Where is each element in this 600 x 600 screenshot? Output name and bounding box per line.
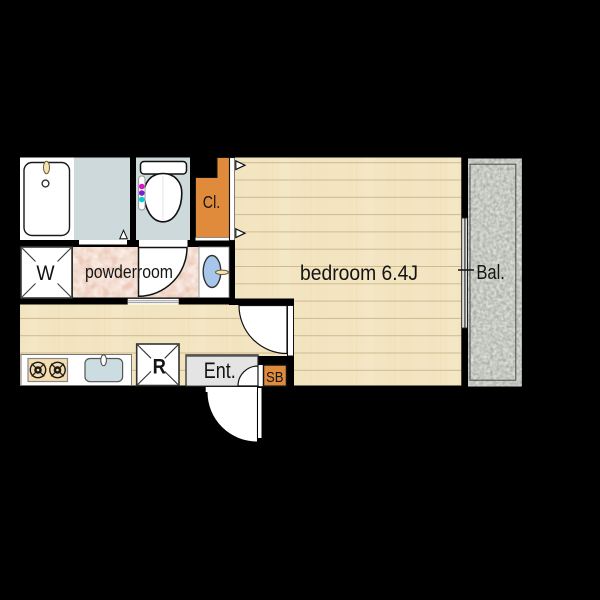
svg-text:R: R [153, 354, 167, 378]
svg-text:SB: SB [266, 369, 284, 386]
svg-text:Cl.: Cl. [203, 192, 220, 212]
svg-text:Ent.: Ent. [204, 358, 236, 383]
svg-text:bedroom 6.4J: bedroom 6.4J [300, 262, 418, 285]
svg-text:powderroom: powderroom [85, 262, 173, 282]
svg-text:W: W [36, 261, 55, 285]
svg-text:Bal.: Bal. [476, 261, 505, 284]
